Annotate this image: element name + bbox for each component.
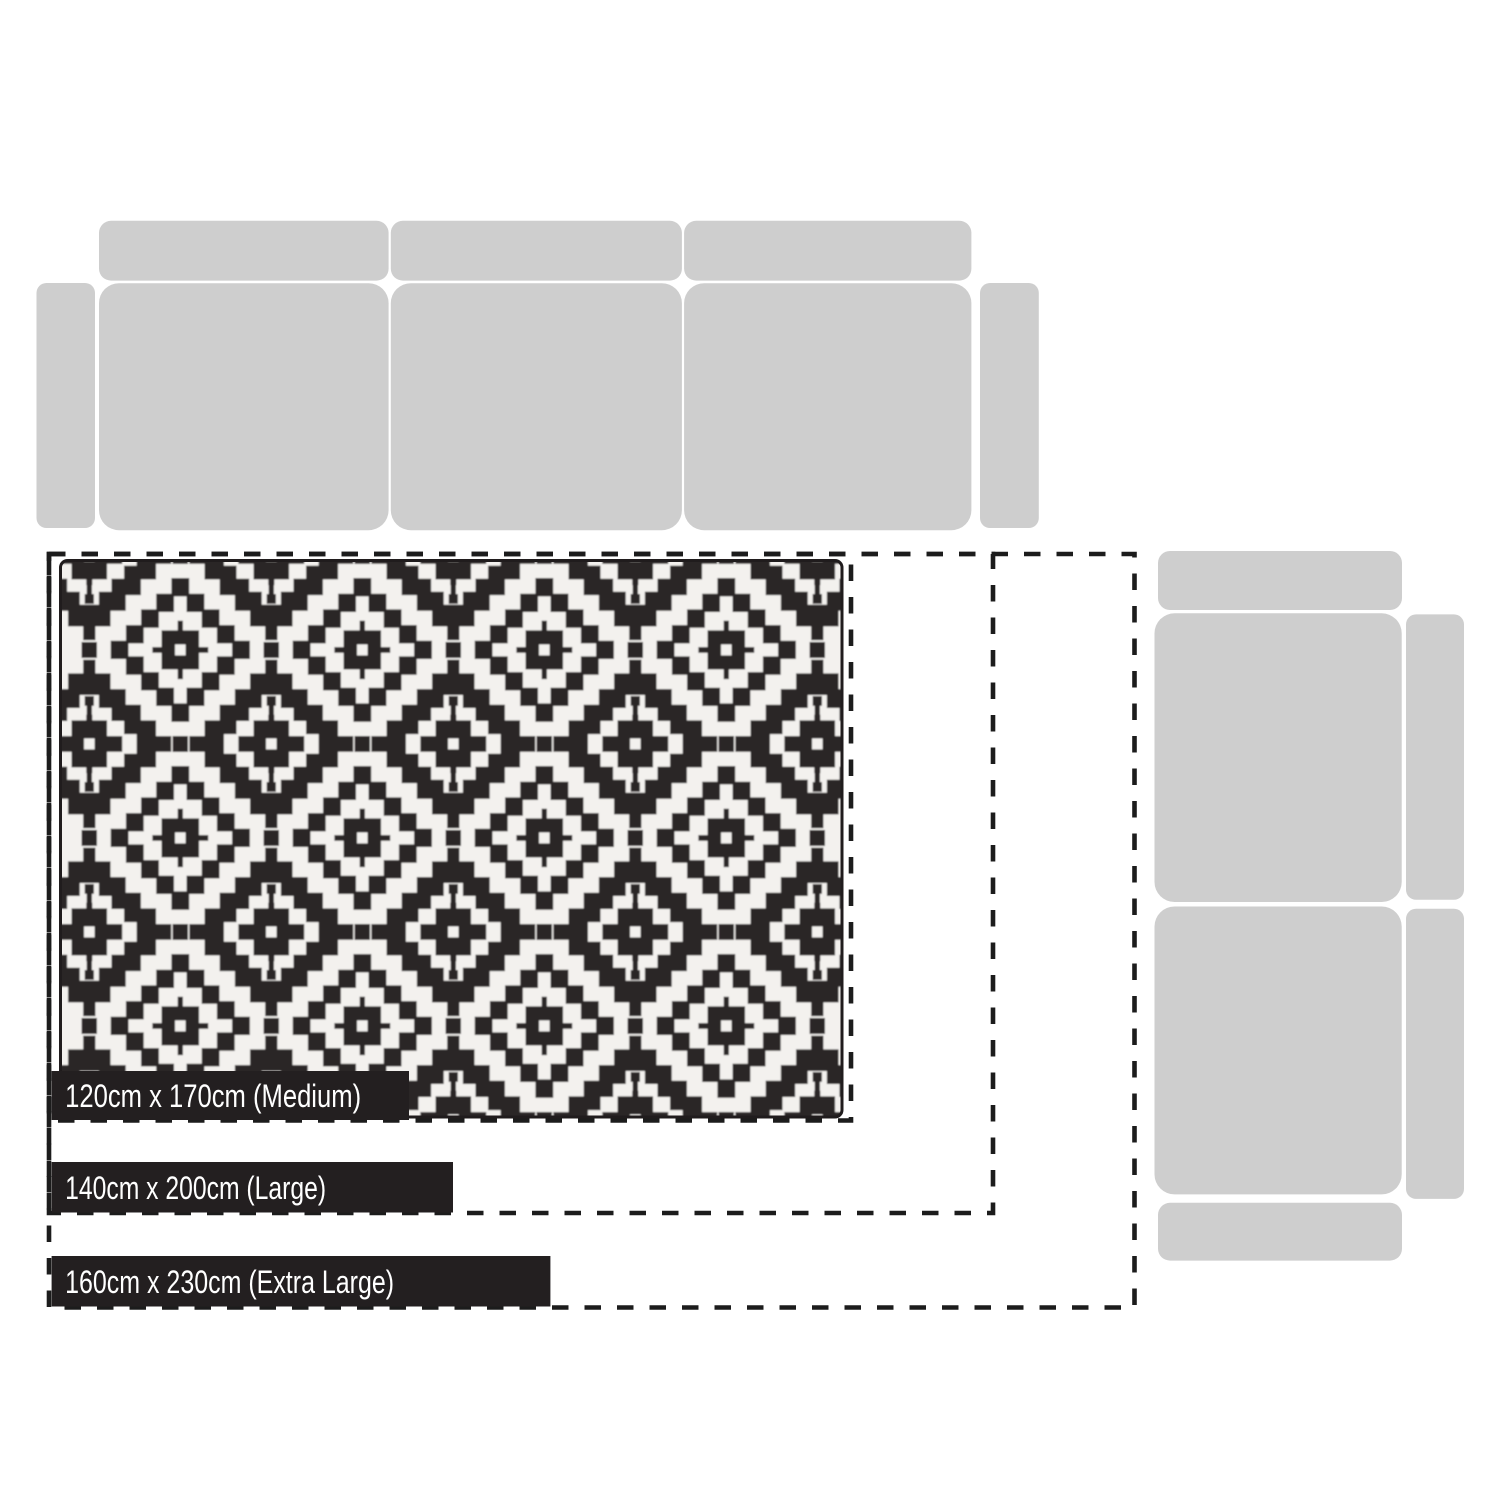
svg-text:160cm x 230cm (Extra Large): 160cm x 230cm (Extra Large): [65, 1264, 394, 1300]
svg-text:140cm x 200cm (Large): 140cm x 200cm (Large): [65, 1170, 326, 1206]
svg-text:120cm x 170cm (Medium): 120cm x 170cm (Medium): [65, 1078, 361, 1114]
